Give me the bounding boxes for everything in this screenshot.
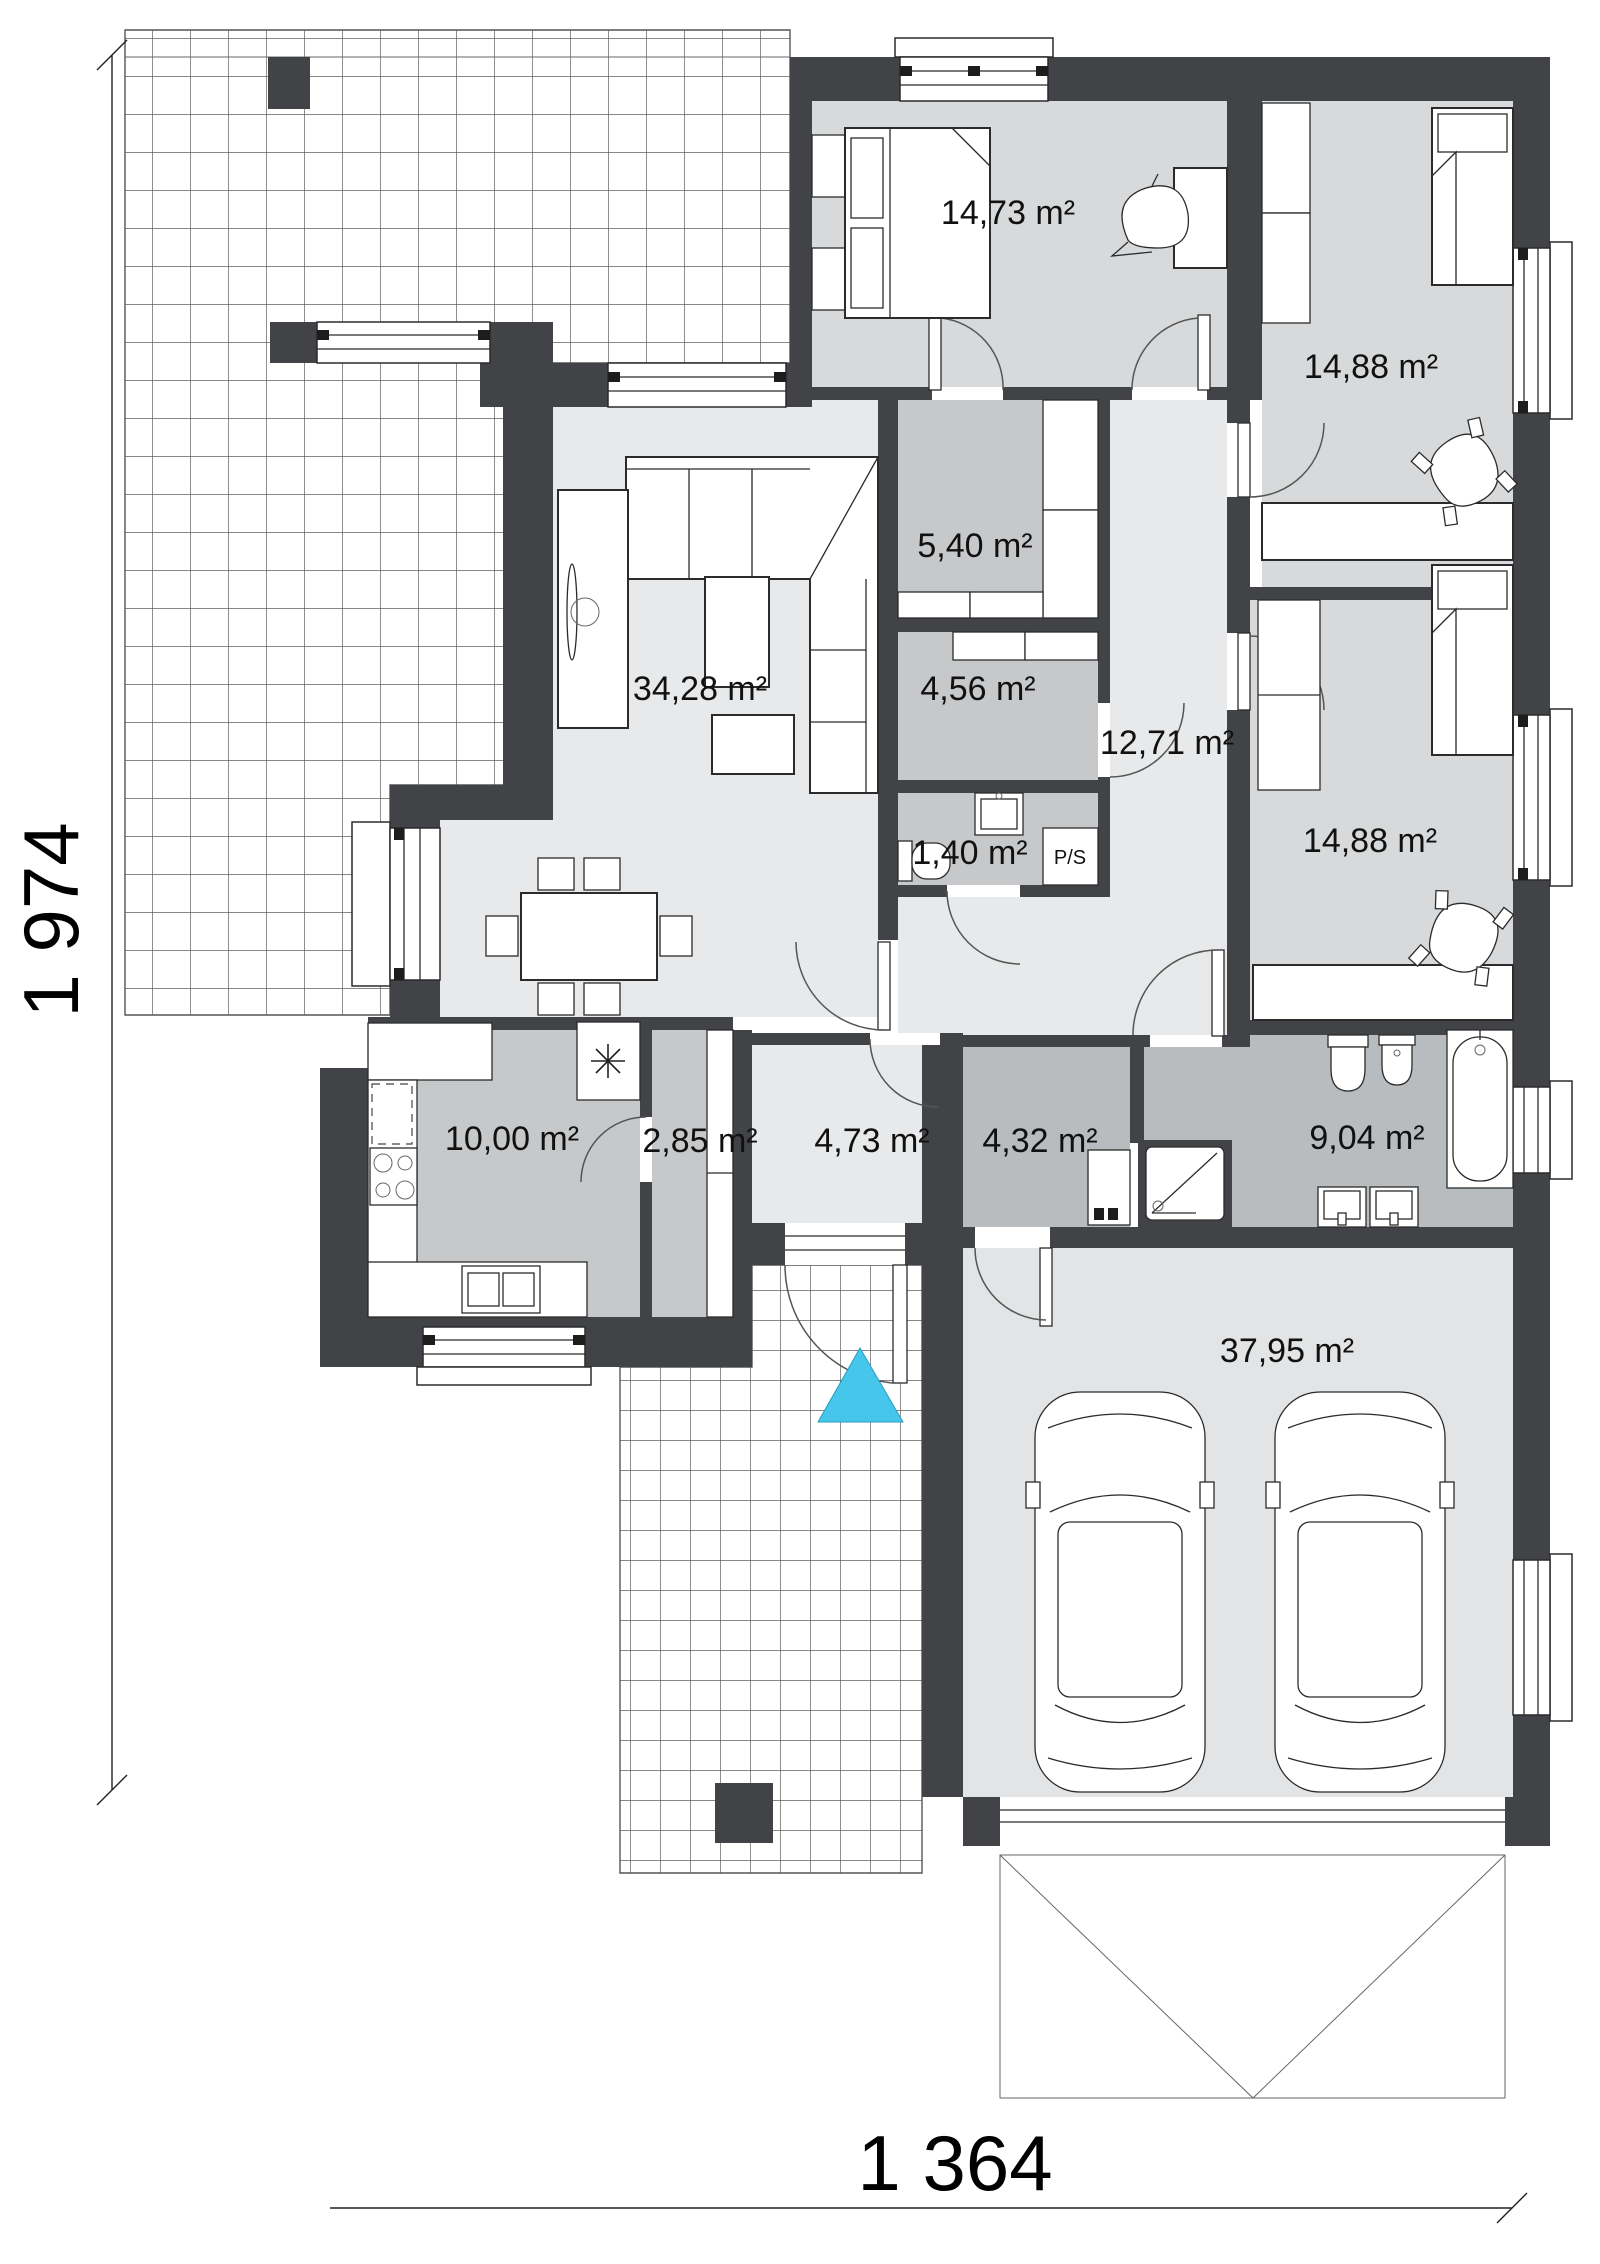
- label-hall: 4,73 m²: [814, 1122, 929, 1160]
- label-living: 34,28 m²: [633, 670, 767, 708]
- label-corridor: 12,71 m²: [1100, 724, 1234, 762]
- floor-plan-drawing: 1 974 1 364 34,28 m² 14,73 m² 14,88 m² 5…: [0, 0, 1600, 2264]
- wardrobe: [1262, 213, 1310, 323]
- window-garage: [1513, 1554, 1572, 1721]
- bathtub: [1447, 1030, 1513, 1188]
- corridor-floor-2: [898, 897, 1250, 1035]
- bathroom-sink: [1370, 1187, 1418, 1227]
- garage-door: [1000, 1797, 1505, 2098]
- label-ps-closet: P/S: [1054, 847, 1086, 869]
- toilet: [1328, 1035, 1368, 1091]
- desk: [1262, 503, 1513, 560]
- floor-plan-page: 1 974 1 364 34,28 m² 14,73 m² 14,88 m² 5…: [0, 0, 1600, 2264]
- storage-cabinets: [953, 632, 1098, 660]
- label-utility: 4,32 m²: [982, 1122, 1097, 1160]
- label-garage: 37,95 m²: [1220, 1332, 1354, 1370]
- bidet: [1379, 1035, 1415, 1085]
- cooktop: [370, 1148, 417, 1205]
- dimension-line-left: 1 974: [7, 40, 127, 1805]
- kitchen-sink: [462, 1266, 540, 1313]
- kitchen-counter: [368, 1023, 492, 1080]
- nightstand: [812, 135, 845, 197]
- snowflake-icon: [591, 1044, 625, 1078]
- fridge: [577, 1022, 640, 1100]
- pantry-shelves: [707, 1030, 733, 1317]
- dimension-height-label: 1 974: [7, 822, 95, 1017]
- terrace-column: [268, 57, 310, 109]
- car-1: [1026, 1392, 1214, 1792]
- window-child1: [1513, 242, 1572, 419]
- shower: [1138, 1140, 1232, 1227]
- label-wc: 1,40 m²: [912, 834, 1027, 872]
- tv-cabinet: [558, 490, 628, 728]
- window-living-terrace-2: [608, 363, 786, 407]
- walkway-column: [715, 1783, 773, 1843]
- label-wardrobe: 5,40 m²: [917, 527, 1032, 565]
- car-2: [1266, 1392, 1454, 1792]
- desk: [1253, 965, 1513, 1020]
- label-child2: 14,88 m²: [1303, 822, 1437, 860]
- single-bed: [1432, 108, 1513, 285]
- wardrobe: [1262, 103, 1310, 213]
- label-child1: 14,88 m²: [1304, 348, 1438, 386]
- label-bedroom: 14,73 m²: [941, 194, 1075, 232]
- window-bathroom: [1513, 1081, 1572, 1179]
- boiler: [1088, 1150, 1130, 1225]
- dimension-width-label: 1 364: [857, 2119, 1052, 2207]
- window-dining: [352, 822, 440, 986]
- wc-sink: [975, 793, 1023, 835]
- single-bed: [1432, 565, 1513, 755]
- corridor-floor: [1110, 400, 1227, 897]
- label-storage: 4,56 m²: [920, 670, 1035, 708]
- window-child2: [1513, 709, 1572, 886]
- window-living-terrace-1: [317, 322, 490, 363]
- label-kitchen: 10,00 m²: [445, 1120, 579, 1158]
- dimension-line-bottom: 1 364: [330, 2119, 1527, 2223]
- nightstand: [812, 248, 845, 310]
- tv-icon: [567, 564, 577, 660]
- label-pantry: 2,85 m²: [642, 1122, 757, 1160]
- window-kitchen: [417, 1327, 591, 1385]
- bathroom-sink: [1318, 1187, 1366, 1227]
- window-bedroom-top: [895, 38, 1053, 101]
- label-bathroom: 9,04 m²: [1309, 1119, 1424, 1157]
- ottoman: [712, 715, 794, 774]
